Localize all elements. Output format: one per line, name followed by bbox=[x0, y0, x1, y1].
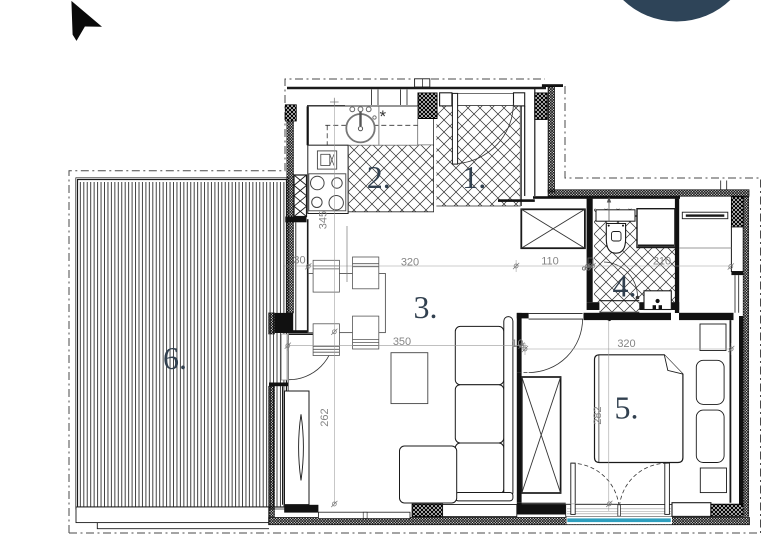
svg-text:2.: 2. bbox=[367, 159, 391, 195]
svg-text:5.: 5. bbox=[615, 390, 639, 426]
svg-text:210: 210 bbox=[653, 256, 671, 268]
svg-text:262: 262 bbox=[319, 408, 331, 426]
svg-text:3.: 3. bbox=[414, 289, 438, 325]
svg-text:320: 320 bbox=[617, 338, 635, 350]
svg-text:4.: 4. bbox=[613, 268, 637, 304]
svg-text:1.: 1. bbox=[462, 159, 486, 195]
svg-text:30: 30 bbox=[293, 255, 305, 267]
svg-text:320: 320 bbox=[401, 257, 419, 269]
svg-text:10: 10 bbox=[511, 338, 523, 350]
svg-text:282: 282 bbox=[592, 406, 604, 424]
svg-text:*: * bbox=[380, 107, 387, 126]
svg-text:110: 110 bbox=[541, 256, 559, 268]
svg-text:345: 345 bbox=[318, 211, 330, 229]
svg-text:6.: 6. bbox=[163, 340, 187, 376]
svg-text:350: 350 bbox=[393, 336, 411, 348]
